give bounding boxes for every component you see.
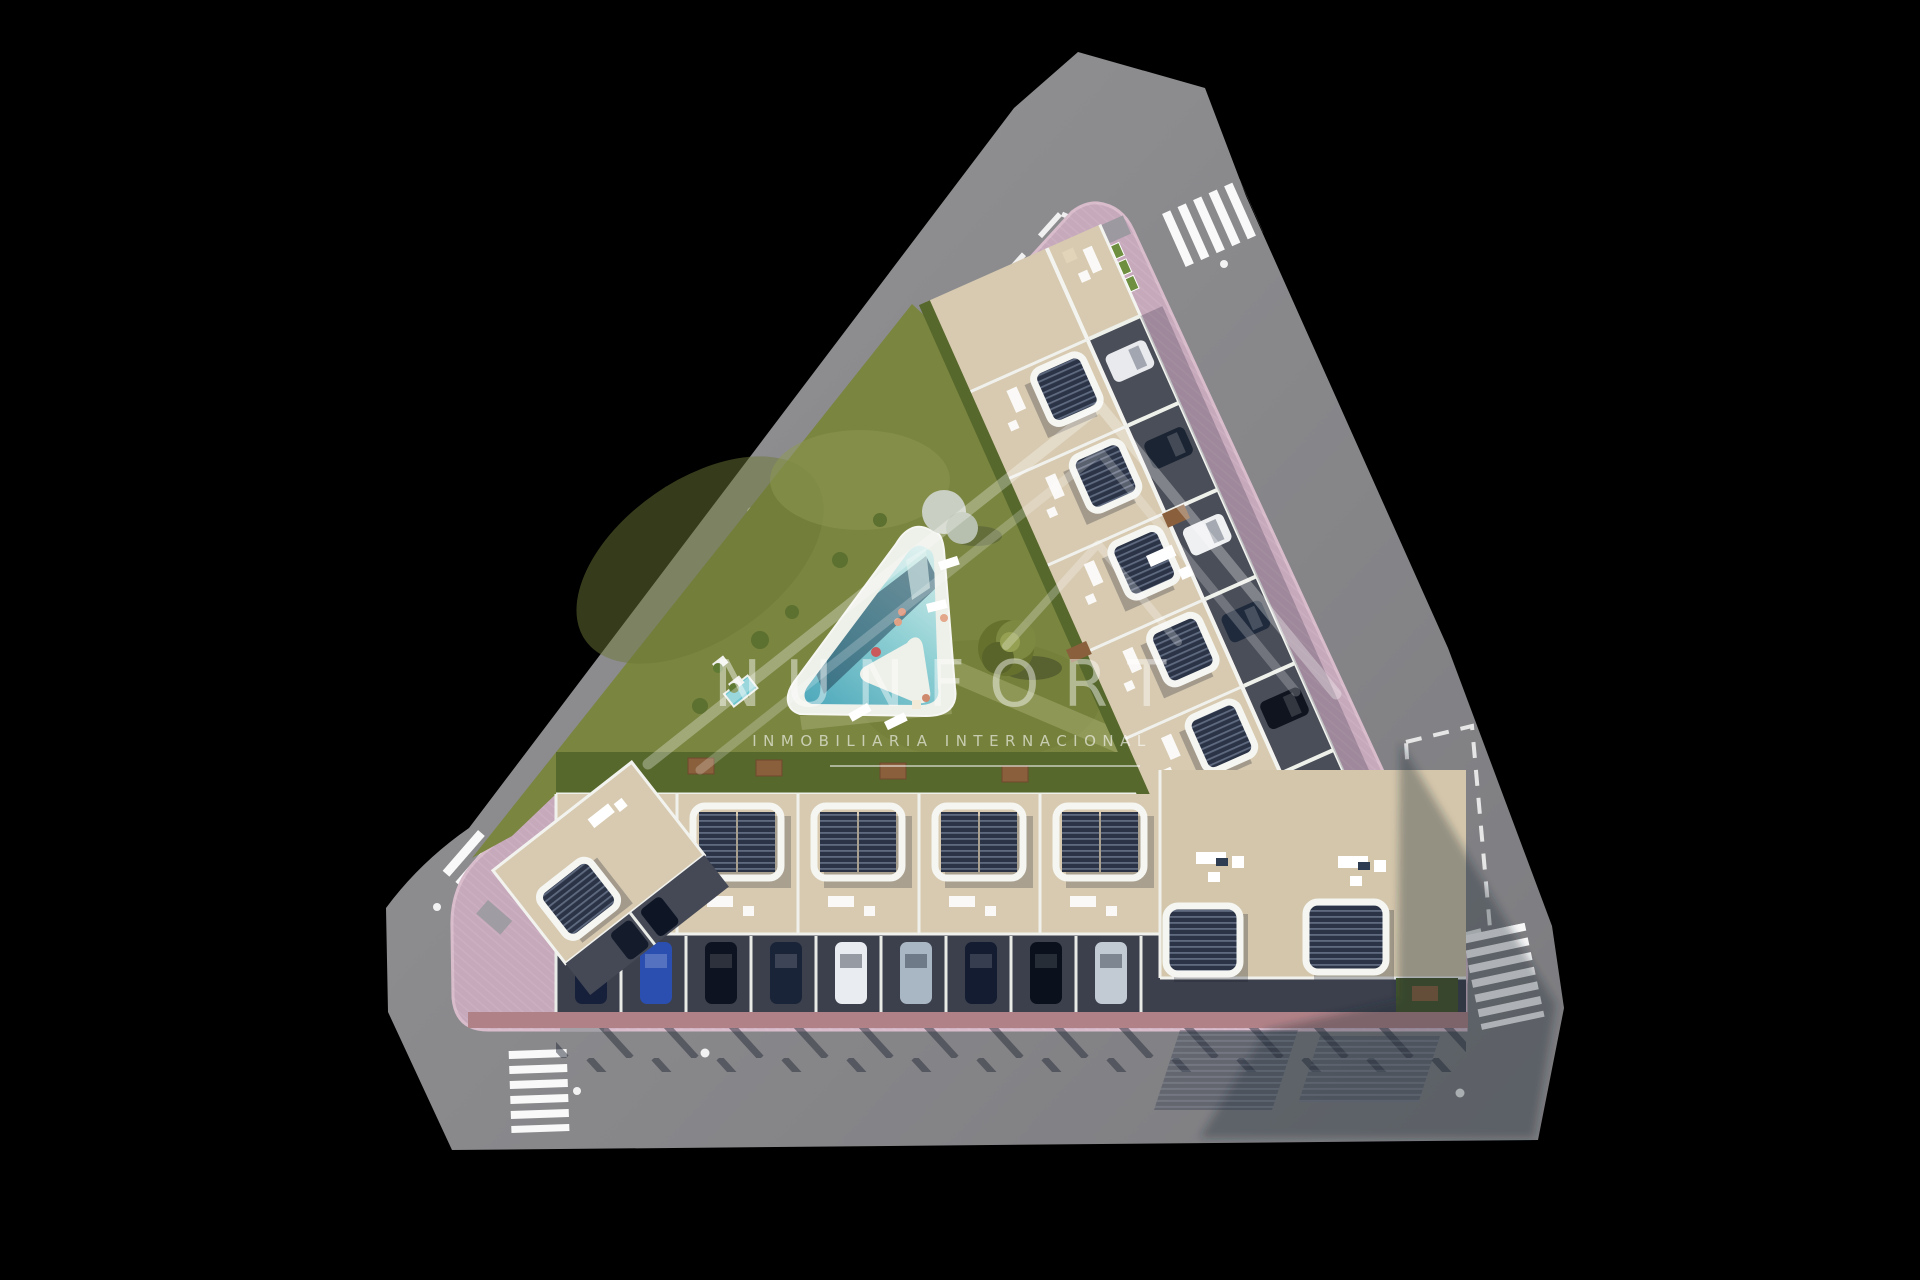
- car-glass: [775, 954, 797, 968]
- car-glass: [840, 954, 862, 968]
- aerial-render-stage: NUNFORT INMOBILIARIA INTERNACIONAL: [0, 0, 1920, 1280]
- reflector-dot: [433, 903, 441, 911]
- car: [965, 942, 997, 1004]
- reflector-dot: [573, 1087, 581, 1095]
- car-glass: [710, 954, 732, 968]
- pergola-louvres: [941, 812, 978, 872]
- watermark-tagline-text: INMOBILIARIA INTERNACIONAL: [752, 732, 1152, 750]
- terrace-table: [1358, 862, 1370, 870]
- picnic-table: [1002, 766, 1028, 782]
- pergola-grid-shadow: [1299, 1036, 1440, 1102]
- pergola-louvres: [738, 812, 775, 872]
- car-glass: [905, 954, 927, 968]
- shrub: [751, 631, 769, 649]
- pergola-louvres: [820, 812, 857, 872]
- shrub: [785, 605, 799, 619]
- terrace-table: [1216, 858, 1228, 866]
- car: [705, 942, 737, 1004]
- car-glass: [970, 954, 992, 968]
- person: [940, 614, 948, 622]
- car: [770, 942, 802, 1004]
- watermark-brand-text: NUNFORT: [714, 648, 1191, 722]
- pergola-louvres: [859, 812, 896, 872]
- pergola-louvres: [1101, 812, 1138, 872]
- reflector-dot: [1220, 260, 1228, 268]
- site-plan-aerial-render: NUNFORT INMOBILIARIA INTERNACIONAL: [0, 0, 1920, 1280]
- car: [835, 942, 867, 1004]
- car: [1030, 942, 1062, 1004]
- parked-cars-row: [575, 942, 1127, 1004]
- car-glass: [1100, 954, 1122, 968]
- car-glass: [645, 954, 667, 968]
- pergola: [1306, 902, 1386, 972]
- car-glass: [1035, 954, 1057, 968]
- picnic-table: [756, 760, 782, 776]
- car: [1095, 942, 1127, 1004]
- shrub: [832, 552, 848, 568]
- pergola-louvres: [1062, 812, 1099, 872]
- shrub: [873, 513, 887, 527]
- pergola-louvres: [980, 812, 1017, 872]
- pergola: [1166, 906, 1240, 974]
- car: [900, 942, 932, 1004]
